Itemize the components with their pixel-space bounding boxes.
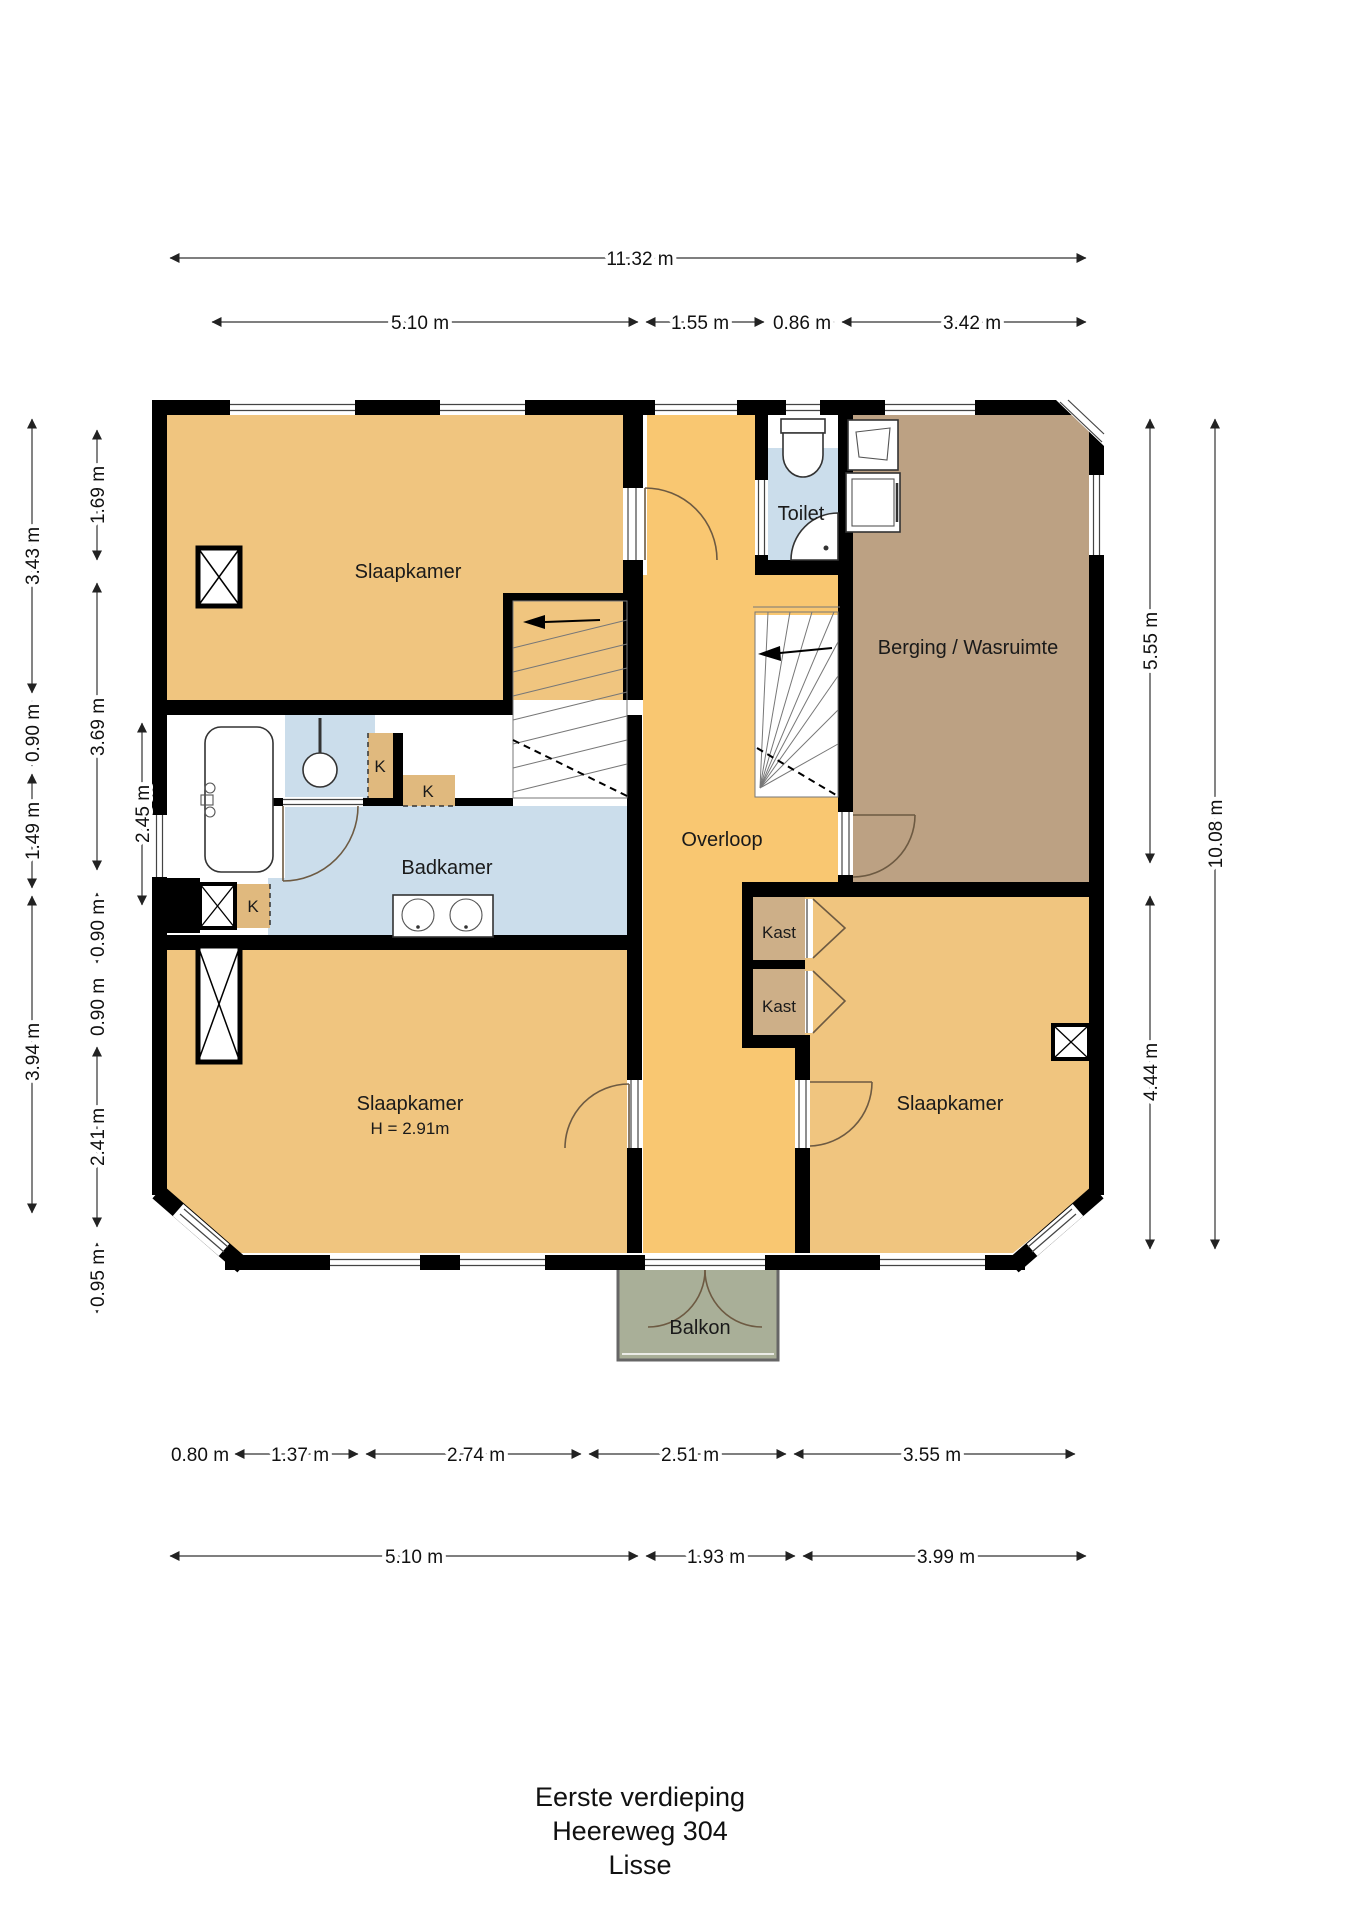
dim-bl-2: 3.99 m: [917, 1547, 975, 1568]
dim-li-4: 2.41 m: [88, 1108, 109, 1166]
label-badkamer: Badkamer: [401, 857, 492, 879]
dim-top-0: 5.10 m: [391, 313, 449, 334]
dim-lo-2: 1.49 m: [23, 802, 44, 860]
dim-bu-3: 2.51 m: [661, 1445, 719, 1466]
label-toilet: Toilet: [778, 503, 825, 525]
sink-icon: [848, 420, 898, 470]
shaft-icon: [198, 946, 240, 1062]
title-address: Heereweg 304: [552, 1816, 728, 1846]
label-kast-bottom: Kast: [762, 997, 796, 1016]
dim-top-total: 11.32 m: [606, 249, 673, 270]
dim-li-3: 0.90 m: [88, 978, 109, 1036]
toilet-icon: [781, 419, 825, 477]
window: [230, 400, 355, 415]
washer-icon: [846, 473, 900, 532]
dim-li-2: 0.90 m: [88, 899, 109, 957]
title-floor: Eerste verdieping: [535, 1782, 745, 1812]
shaft-icon: [200, 884, 235, 928]
dim-top-1: 1.55 m: [671, 313, 729, 334]
stair-direction-arrow: [758, 646, 832, 661]
label-balkon: Balkon: [669, 1317, 730, 1339]
dim-bu-1: 1.37 m: [271, 1445, 329, 1466]
dim-lo-0: 3.43 m: [23, 527, 44, 585]
label-slaapkamer-left-height: H = 2.91m: [371, 1119, 450, 1138]
dim-lo-3: 3.94 m: [23, 1023, 44, 1081]
dim-bu-0: 0.80 m: [171, 1445, 229, 1466]
floorplan-page: Slaapkamer Toilet Berging / Wasruimte Ba…: [0, 0, 1358, 1920]
window: [885, 400, 975, 415]
dim-ro-0: 10.08 m: [1206, 800, 1227, 869]
shaft-icon: [1053, 1025, 1089, 1059]
room-slaapkamer-right: [795, 897, 1089, 1253]
window: [786, 400, 820, 415]
label-berging: Berging / Wasruimte: [878, 637, 1058, 659]
window: [330, 1255, 420, 1270]
label-slaapkamer-right: Slaapkamer: [897, 1093, 1004, 1115]
label-k1: K: [374, 757, 386, 776]
room-balkon: [618, 1268, 778, 1360]
dim-li2-0: 2.45 m: [133, 785, 154, 843]
label-overloop: Overloop: [681, 829, 762, 851]
room-overloop-corridor: [643, 882, 742, 1253]
door-toilet: [755, 480, 768, 555]
label-slaapkamer-left: Slaapkamer: [357, 1093, 464, 1115]
label-k3: K: [247, 897, 259, 916]
dim-ri-1: 4.44 m: [1141, 1043, 1162, 1101]
floor-plan-svg: Slaapkamer Toilet Berging / Wasruimte Ba…: [0, 0, 1358, 1920]
dim-bu-4: 3.55 m: [903, 1445, 961, 1466]
staircase-main: [753, 607, 840, 797]
room-overloop-corridor-wide: [742, 1048, 795, 1253]
window: [460, 1255, 545, 1270]
sink-double-icon: [393, 895, 493, 937]
dim-top-3: 3.42 m: [943, 313, 1001, 334]
dim-bu-2: 2.74 m: [447, 1445, 505, 1466]
dim-li-5: 0.95 m: [88, 1249, 109, 1307]
room-overloop-vestibule: [647, 415, 755, 575]
room-overloop-understairs: [755, 797, 838, 882]
title-city: Lisse: [608, 1850, 671, 1880]
window: [1089, 475, 1104, 555]
dim-bl-0: 5.10 m: [385, 1547, 443, 1568]
dim-top-2: 0.86 m: [773, 313, 831, 334]
dim-lo-1: 0.90 m: [23, 704, 44, 762]
room-overloop-mid: [643, 575, 838, 615]
label-k2: K: [422, 782, 434, 801]
title-block: Eerste verdieping Heereweg 304 Lisse: [535, 1782, 745, 1880]
label-slaapkamer-top: Slaapkamer: [355, 561, 462, 583]
label-kast-top: Kast: [762, 923, 796, 942]
window: [440, 400, 525, 415]
window: [655, 400, 737, 415]
dim-li-0: 1.69 m: [88, 466, 109, 524]
window: [880, 1255, 985, 1270]
bathtub-icon: [201, 727, 273, 872]
dim-ri-0: 5.55 m: [1141, 612, 1162, 670]
dim-li-1: 3.69 m: [88, 698, 109, 756]
window: [152, 815, 167, 877]
dim-bl-1: 1.93 m: [687, 1547, 745, 1568]
shaft-icon: [198, 548, 240, 606]
